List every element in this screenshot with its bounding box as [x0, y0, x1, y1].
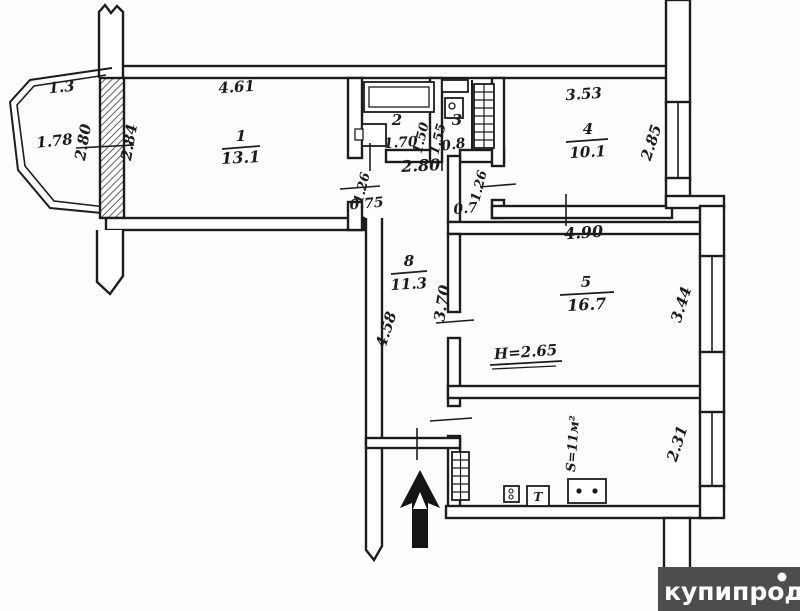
dimension-label: 5: [581, 273, 591, 291]
dimension-label: 0.75: [349, 195, 384, 214]
dimension-label: S=11м²: [564, 415, 583, 473]
dimension-label: 16.7: [567, 294, 607, 315]
wall-column: [99, 5, 123, 78]
appliance: [504, 486, 519, 502]
cistern: [442, 80, 468, 92]
dimension-label: 1.3: [48, 77, 76, 98]
stove-burner: [576, 488, 581, 493]
wall-column: [97, 230, 123, 294]
wall-segment: [446, 506, 712, 518]
watermark-dot: [778, 573, 787, 582]
dimension-label: 0.7: [453, 200, 479, 218]
stove-burner: [592, 488, 597, 493]
wall-segment: [700, 486, 724, 518]
watermark: купипродай: [658, 567, 800, 611]
dimension-label: 2.80: [71, 122, 95, 163]
wall-segment: [106, 218, 364, 230]
dimension-label: 2: [391, 111, 402, 129]
entrance-arrow: [400, 470, 440, 548]
wall-segment: [366, 438, 460, 448]
dimension-label: H=2.65: [492, 341, 557, 363]
dimension-label: 10.1: [569, 142, 606, 162]
dimension-label: 2.31: [663, 423, 692, 464]
dimension-label: 13.1: [221, 147, 261, 168]
dimension-label: 3: [452, 111, 462, 129]
wall-segment: [348, 78, 362, 158]
stove: [568, 479, 606, 503]
door-ticks: [76, 143, 566, 460]
wall-segment: [366, 218, 382, 560]
dimension-label: 3.70: [430, 283, 454, 322]
wall-segment: [700, 352, 724, 414]
watermark-text: купипродай: [664, 577, 800, 606]
dimension-label: 1.78: [35, 130, 74, 152]
dimension-label: 1: [236, 127, 246, 145]
underline: [492, 366, 556, 369]
dimension-label: Т: [534, 490, 544, 504]
wall-segment: [492, 206, 672, 218]
dimension-label: 11.3: [390, 274, 427, 294]
sink: [362, 124, 386, 146]
dimension-label: 2.85: [637, 122, 666, 163]
wall-segment: [112, 66, 672, 78]
floorplan-scan: 1.31.782.802.844.61113.121.701.501.5530.…: [0, 0, 800, 611]
dimension-label: 4: [583, 120, 593, 138]
dimension-label: 3.53: [565, 84, 603, 105]
dimension-label: 4.90: [564, 222, 604, 244]
dimension-label: 4.61: [218, 77, 256, 98]
tick: [430, 418, 472, 421]
dimension-label: 3.44: [667, 284, 695, 324]
floorplan-drawing: 1.31.782.802.844.61113.121.701.501.5530.…: [0, 0, 800, 611]
dimension-label: 8: [404, 252, 415, 270]
bathtub-inner: [369, 87, 429, 107]
dimension-label: 2.80: [400, 155, 441, 176]
appliance-dot: [509, 489, 513, 493]
wall-segment: [448, 386, 702, 398]
sink-tap: [355, 129, 363, 140]
wall-segment: [666, 0, 690, 104]
toilet-bowl: [449, 103, 455, 109]
wall-segment: [700, 206, 724, 258]
appliance-dot: [509, 495, 513, 499]
dimension-label: 0.8: [440, 135, 467, 154]
